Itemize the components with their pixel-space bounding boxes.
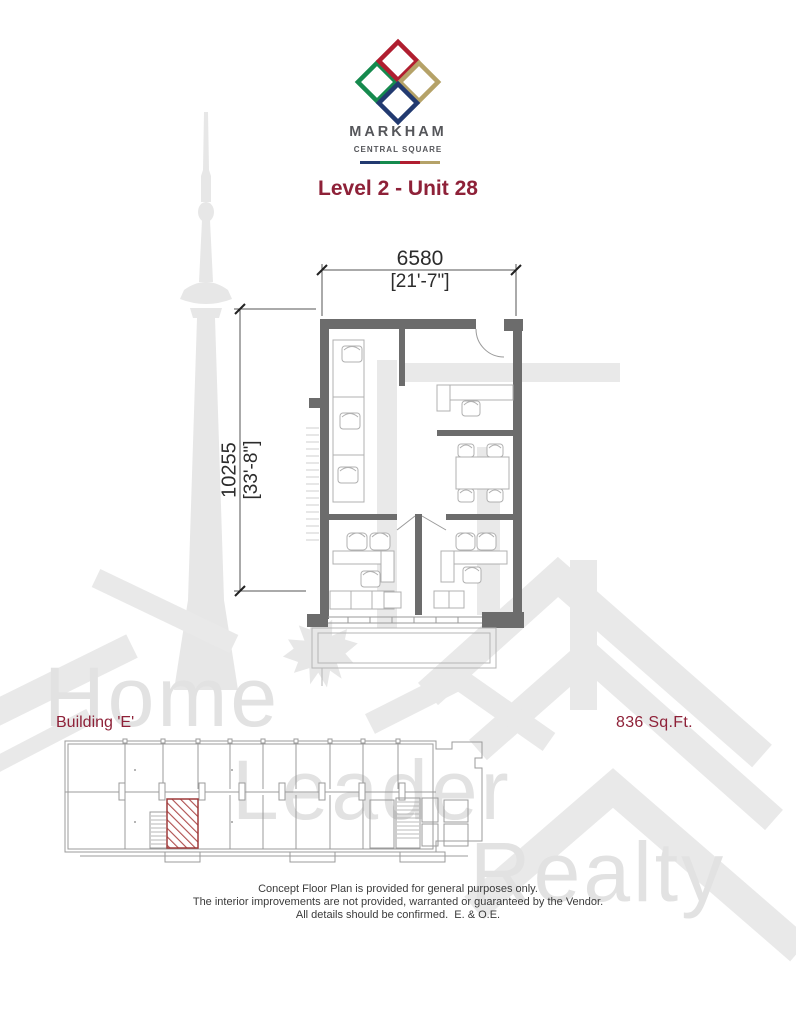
unit-floor-plan	[306, 319, 524, 686]
stair-core-left	[150, 812, 167, 848]
plan-artwork	[0, 0, 796, 1030]
page-title: Level 2 - Unit 28	[0, 177, 796, 201]
disclaimer-line-1: Concept Floor Plan is provided for gener…	[0, 883, 796, 896]
bar-segment-navy	[360, 161, 380, 164]
bar-segment-red	[400, 161, 420, 164]
adjacent-wall-hatch	[306, 428, 319, 540]
floor-plan-page: Home Leader Realty	[0, 0, 796, 1030]
brand-color-bar	[360, 161, 440, 164]
footprint-balcony-tabs	[165, 852, 445, 862]
brand-name: MARKHAM	[0, 124, 796, 140]
logo-diamond-tan	[400, 63, 438, 101]
building-footprint	[65, 739, 482, 862]
area-label: 836 Sq.Ft.	[616, 714, 693, 732]
highlighted-unit	[167, 799, 198, 848]
logo-diamond-navy	[379, 84, 417, 122]
height-dimension-imperial: [33'-8"]	[241, 441, 263, 500]
markham-logo-diamonds	[358, 42, 438, 122]
height-dimension-metric: 10255	[219, 442, 242, 498]
disclaimer: Concept Floor Plan is provided for gener…	[0, 883, 796, 922]
logo-diamond-red	[379, 42, 417, 80]
bar-segment-green	[380, 161, 400, 164]
width-dimension-imperial: [21'-7"]	[320, 271, 520, 293]
width-dimension-metric: 6580	[320, 247, 520, 271]
disclaimer-line-2: The interior improvements are not provid…	[0, 896, 796, 909]
balcony-outline	[312, 628, 496, 686]
window-track	[328, 617, 482, 623]
building-label: Building 'E'	[56, 714, 134, 732]
disclaimer-line-3: All details should be confirmed. E. & O.…	[0, 909, 796, 922]
brand-tagline: CENTRAL SQUARE	[0, 145, 796, 154]
entry-door-arc	[476, 329, 504, 357]
logo-diamond-green	[358, 63, 396, 101]
bar-segment-tan	[420, 161, 440, 164]
